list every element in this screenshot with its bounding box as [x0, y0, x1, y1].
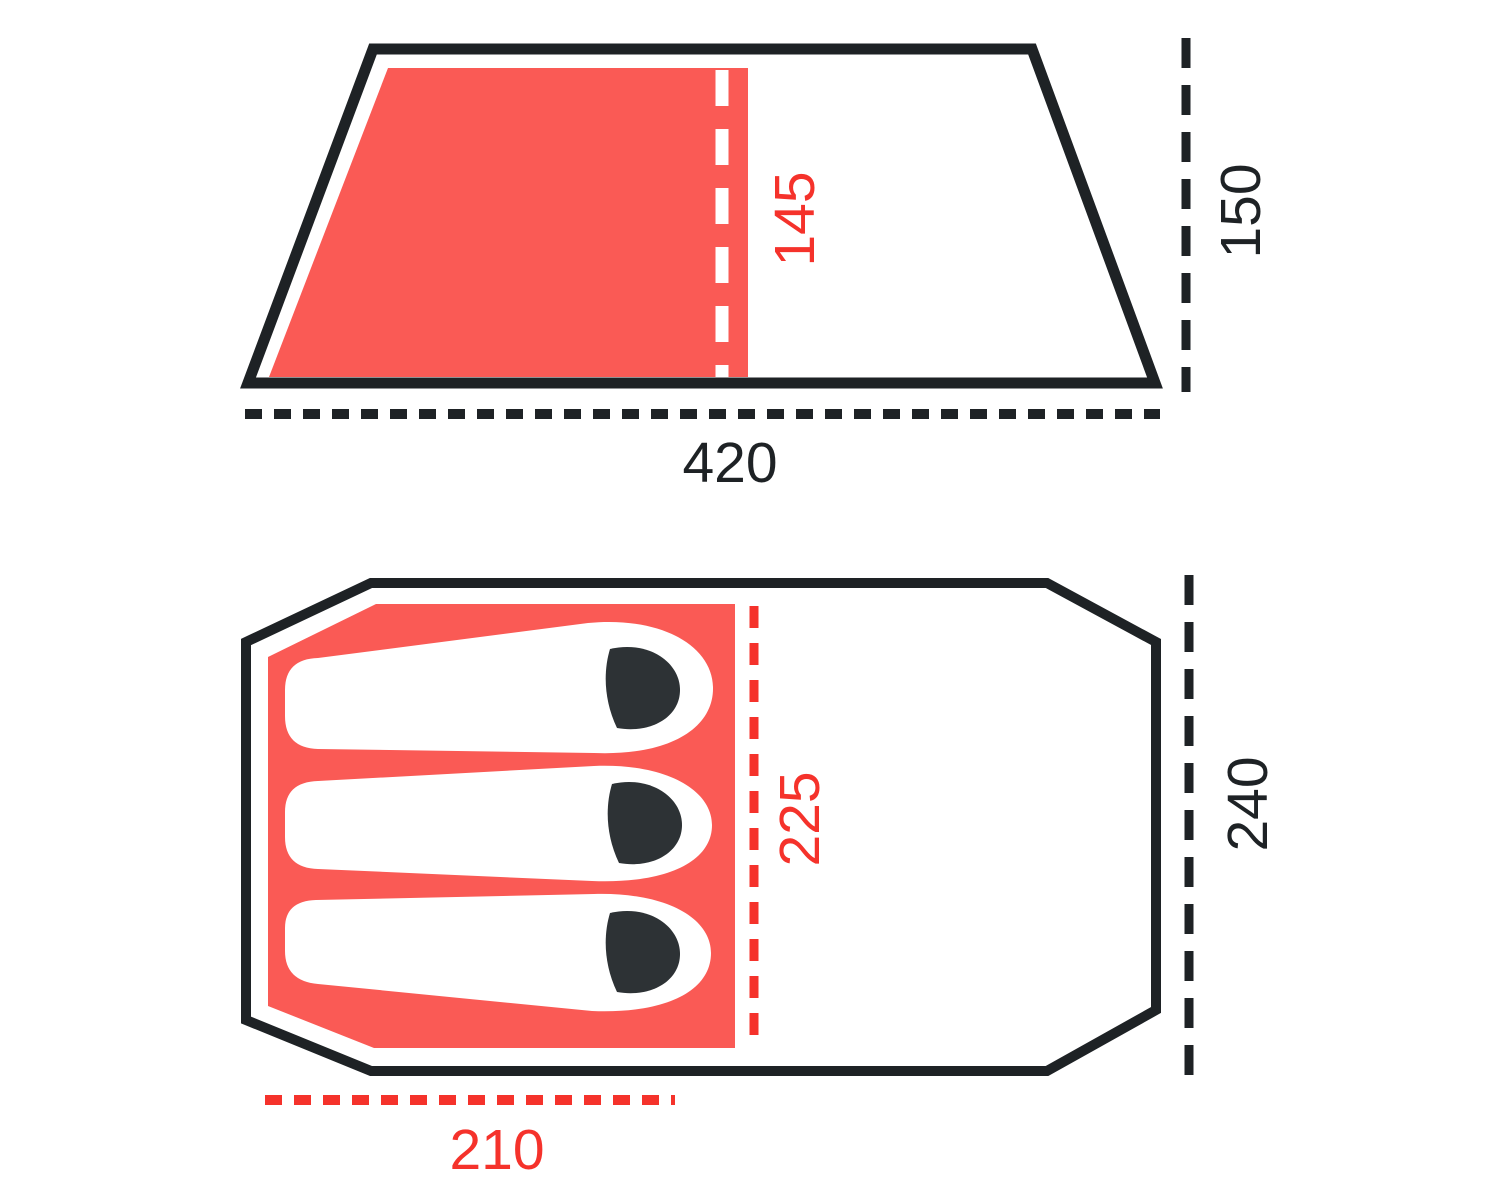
height-label: 150 — [1209, 163, 1273, 258]
inner-height-label: 145 — [763, 171, 827, 266]
length-label: 420 — [682, 431, 777, 495]
tent-dimensions-diagram: 145 420 150 — [0, 0, 1500, 1200]
side-view-diagram: 145 420 150 — [245, 38, 1273, 495]
sleeping-bag-middle — [285, 766, 712, 882]
floor-plan-diagram: 225 240 210 — [246, 575, 1280, 1182]
side-view-highlight-area — [269, 68, 748, 377]
inner-length-label: 225 — [768, 771, 832, 866]
width-label: 240 — [1216, 756, 1280, 851]
diagram-canvas: 145 420 150 — [0, 0, 1500, 1200]
sleeping-area-width-label: 210 — [449, 1118, 544, 1182]
